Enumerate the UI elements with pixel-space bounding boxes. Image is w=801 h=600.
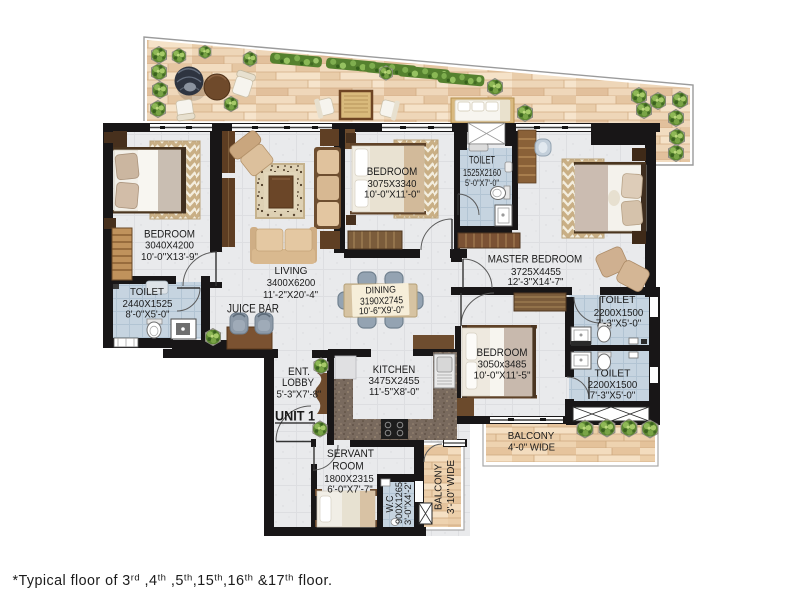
svg-text:5'-3"X7'-8": 5'-3"X7'-8" [277, 389, 322, 401]
svg-text:10'-0"X11'-5": 10'-0"X11'-5" [474, 370, 531, 382]
svg-text:3040X4200: 3040X4200 [145, 240, 194, 252]
svg-text:3400X6200: 3400X6200 [267, 277, 316, 289]
svg-text:7'-3"X5'-0": 7'-3"X5'-0" [590, 390, 636, 402]
svg-text:7'-3"X5'-0": 7'-3"X5'-0" [596, 318, 642, 330]
svg-text:UNIT 1: UNIT 1 [275, 409, 315, 424]
svg-text:TOILET: TOILET [469, 155, 495, 167]
svg-text:12'-3"X14'-7": 12'-3"X14'-7" [508, 276, 564, 288]
svg-text:TOILET: TOILET [600, 294, 637, 306]
svg-text:8'-0"X5'-0": 8'-0"X5'-0" [126, 309, 170, 321]
svg-text:11'-5"X8'-0": 11'-5"X8'-0" [369, 386, 419, 398]
svg-text:SERVANT: SERVANT [327, 448, 374, 460]
svg-text:10'-0"X11'-0": 10'-0"X11'-0" [364, 189, 420, 201]
svg-text:4'-0" WIDE: 4'-0" WIDE [508, 442, 555, 454]
svg-text:3'-0"X4'-2": 3'-0"X4'-2" [403, 481, 414, 525]
svg-text:BEDROOM: BEDROOM [367, 166, 418, 178]
svg-text:11'-2"X20'-4": 11'-2"X20'-4" [263, 289, 318, 301]
svg-text:BALCONY: BALCONY [433, 464, 445, 510]
svg-text:10'-0"X13'-9": 10'-0"X13'-9" [141, 251, 198, 263]
svg-text:JUICE BAR: JUICE BAR [227, 304, 279, 316]
svg-text:TOILET: TOILET [130, 286, 165, 298]
svg-text:5'-0"X7'-0": 5'-0"X7'-0" [465, 178, 499, 189]
svg-text:LIVING: LIVING [275, 266, 308, 277]
svg-text:MASTER BEDROOM: MASTER BEDROOM [488, 254, 583, 266]
svg-text:3'-10" WIDE: 3'-10" WIDE [445, 460, 457, 514]
svg-text:ROOM: ROOM [332, 461, 364, 473]
svg-text:*Typical floor of 3rd ,4th ,5t: *Typical floor of 3rd ,4th ,5th,15th,16t… [13, 573, 333, 590]
svg-text:TOILET: TOILET [595, 368, 632, 380]
svg-text:BALCONY: BALCONY [508, 430, 555, 442]
svg-text:BEDROOM: BEDROOM [477, 347, 528, 359]
svg-text:6'-0"X7'-7": 6'-0"X7'-7" [327, 484, 373, 496]
svg-text:10'-6"X9'-0": 10'-6"X9'-0" [359, 305, 404, 318]
svg-text:LOBBY: LOBBY [282, 377, 315, 389]
